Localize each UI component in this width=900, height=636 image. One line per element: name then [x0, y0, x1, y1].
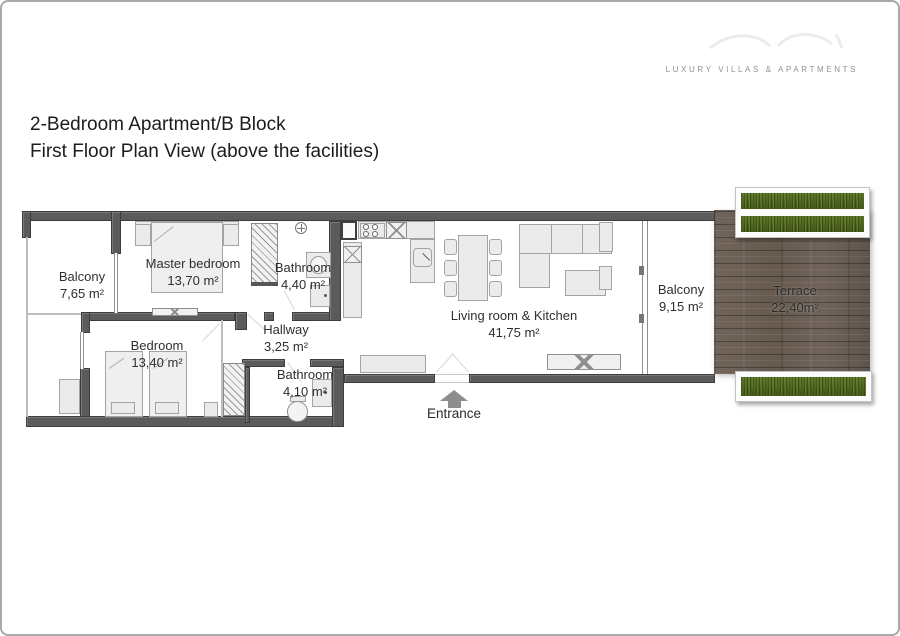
- wall-mid-stub: [81, 312, 90, 333]
- grass-strip: [741, 193, 864, 209]
- window-master-balcony: [114, 253, 118, 313]
- room-label-balcony-left: Balcony7,65 m²: [59, 268, 105, 302]
- wall-top: [22, 211, 715, 221]
- appliance-dot: [324, 294, 327, 297]
- room-label-master-bedroom: Master bedroom13,70 m²: [146, 255, 241, 289]
- dining-table: [458, 235, 488, 301]
- door-swing: [202, 323, 220, 341]
- tv-bench: [152, 308, 198, 316]
- room-label-balcony-right: Balcony9,15 m²: [658, 281, 704, 315]
- door-swing: [451, 353, 468, 372]
- side-table: [599, 222, 613, 252]
- window-bedroom-balcony: [80, 332, 84, 369]
- door-swing: [436, 353, 453, 372]
- wall-balcony-divider: [111, 211, 121, 254]
- room-label-hallway: Hallway3,25 m²: [263, 321, 309, 355]
- chair: [489, 281, 502, 297]
- chair: [444, 239, 457, 255]
- pillow: [111, 402, 135, 414]
- brand-logo-faint-icon: [700, 26, 850, 58]
- slider-handle: [639, 314, 644, 323]
- ceiling-lamp: [295, 222, 307, 234]
- floor-plan-page: LUXURY VILLAS & APARTMENTS 2-Bedroom Apa…: [0, 0, 900, 636]
- wall-mid-seg: [264, 312, 274, 321]
- chair: [489, 260, 502, 276]
- fridge: [386, 222, 407, 239]
- room-label-bathroom-bottom: Bathroom4,10 m²: [277, 366, 333, 400]
- sofa-chaise: [519, 253, 550, 288]
- balcony-railing: [28, 313, 81, 315]
- nightstand: [223, 224, 239, 246]
- wall-bottom-mid: [344, 374, 435, 383]
- burner: [363, 224, 369, 230]
- title-line-2: First Floor Plan View (above the facilit…: [30, 138, 379, 165]
- burner: [363, 231, 369, 237]
- kitchen-tall-appliance: [343, 246, 362, 263]
- wardrobe-bedroom: [223, 363, 245, 416]
- slider-handle: [639, 266, 644, 275]
- balcony-railing: [26, 237, 28, 417]
- shoe-cabinet: [360, 355, 426, 373]
- grass-strip: [741, 377, 866, 396]
- door-swing: [284, 290, 295, 310]
- grass-strip: [741, 216, 864, 232]
- wall-bedroom-left: [80, 368, 90, 423]
- side-table: [599, 266, 612, 290]
- kitchen-sink: [413, 248, 432, 267]
- entrance-threshold: [435, 374, 469, 383]
- burner: [372, 231, 378, 237]
- nightstand: [204, 402, 218, 417]
- room-label-living-kitchen: Living room & Kitchen41,75 m²: [451, 307, 577, 341]
- terrace-planter-top: [735, 187, 870, 238]
- wall-bathroom-bottom-left: [245, 367, 250, 423]
- room-label-terrace: Terrace22,40m²: [771, 282, 819, 316]
- wall-left-stub: [22, 211, 31, 238]
- nightstand: [135, 224, 151, 246]
- wall-mid-cap: [235, 312, 247, 330]
- chair: [444, 260, 457, 276]
- room-label-bedroom: Bedroom13,40 m²: [131, 337, 184, 371]
- toilet-bowl: [287, 401, 308, 422]
- brand-tagline: LUXURY VILLAS & APARTMENTS: [666, 65, 858, 74]
- balcony-unit: [59, 379, 80, 414]
- title-line-1: 2-Bedroom Apartment/B Block: [30, 111, 379, 138]
- sideboard: [547, 354, 621, 370]
- glass-wall-balcony: [642, 221, 648, 374]
- chair: [489, 239, 502, 255]
- wall-bottom-right: [469, 374, 715, 383]
- wall-niche: [341, 221, 357, 240]
- pillow: [155, 402, 179, 414]
- entrance-label: Entrance: [427, 406, 481, 421]
- terrace-planter-bottom: [735, 371, 872, 402]
- chair: [444, 281, 457, 297]
- wall-jog: [332, 367, 344, 427]
- entrance-arrow-icon: [440, 390, 468, 401]
- burner: [372, 224, 378, 230]
- room-label-bathroom-top: Bathroom4,40 m²: [275, 259, 331, 293]
- page-title: 2-Bedroom Apartment/B Block First Floor …: [30, 111, 379, 165]
